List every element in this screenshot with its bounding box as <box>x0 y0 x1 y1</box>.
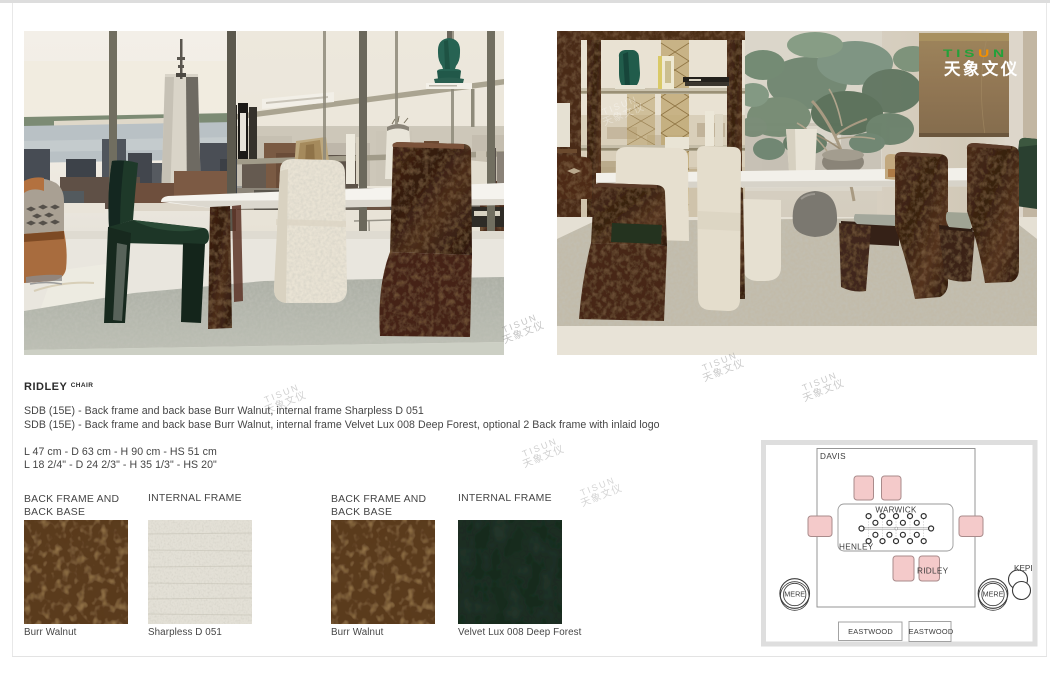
svg-text:EASTWOOD: EASTWOOD <box>909 627 954 636</box>
svg-text:天象文仪: 天象文仪 <box>944 59 1020 79</box>
svg-text:KEPI: KEPI <box>1014 564 1033 573</box>
svg-text:TISUN: TISUN <box>943 47 1008 60</box>
svg-text:HENLEY: HENLEY <box>839 543 874 552</box>
svg-text:MERE: MERE <box>983 590 1004 599</box>
svg-text:DAVIS: DAVIS <box>820 452 846 461</box>
svg-text:MERE: MERE <box>784 590 805 599</box>
svg-text:RIDLEY: RIDLEY <box>917 567 949 576</box>
svg-text:EASTWOOD: EASTWOOD <box>848 627 893 636</box>
